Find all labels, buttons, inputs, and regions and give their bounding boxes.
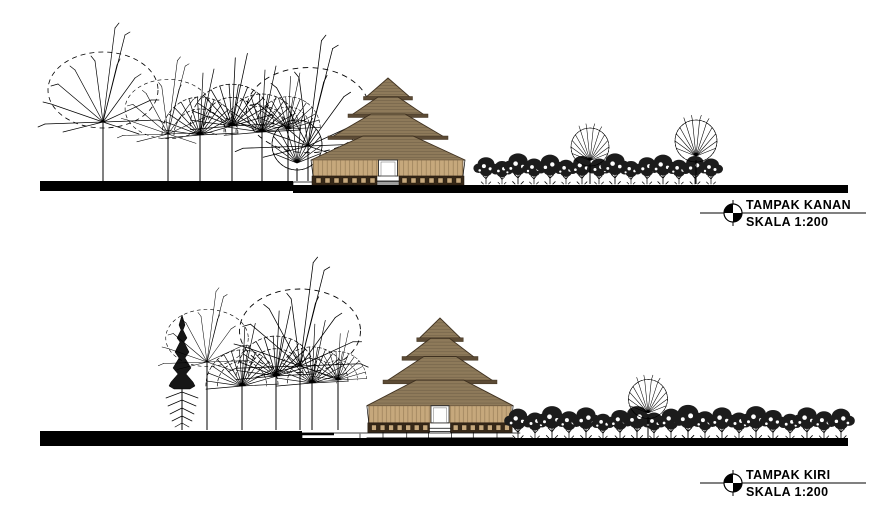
deciduous-tree	[158, 288, 253, 430]
view-title: TAMPAK KANAN	[746, 198, 851, 212]
shrub-row	[473, 153, 723, 184]
shrub-row	[504, 405, 855, 438]
elevation-left-view: TAMPAK KIRI SKALA 1:200	[40, 257, 866, 499]
deciduous-tree	[117, 57, 216, 181]
pavilion-building	[367, 318, 513, 438]
view-label: TAMPAK KANAN SKALA 1:200	[700, 198, 866, 229]
drawing-sheet: TAMPAK KANAN SKALA 1:200	[0, 0, 870, 518]
elevation-right-view: TAMPAK KANAN SKALA 1:200	[38, 23, 866, 229]
scale-label: SKALA 1:200	[746, 485, 828, 499]
ground-line	[40, 431, 848, 446]
elevation-drawing: TAMPAK KANAN SKALA 1:200	[0, 0, 870, 518]
deciduous-tree	[38, 23, 165, 181]
view-label: TAMPAK KIRI SKALA 1:200	[700, 468, 866, 499]
scale-label: SKALA 1:200	[746, 215, 828, 229]
palm-tree-cluster	[206, 307, 367, 430]
view-title: TAMPAK KIRI	[746, 468, 830, 482]
conifer-tree	[166, 315, 198, 430]
